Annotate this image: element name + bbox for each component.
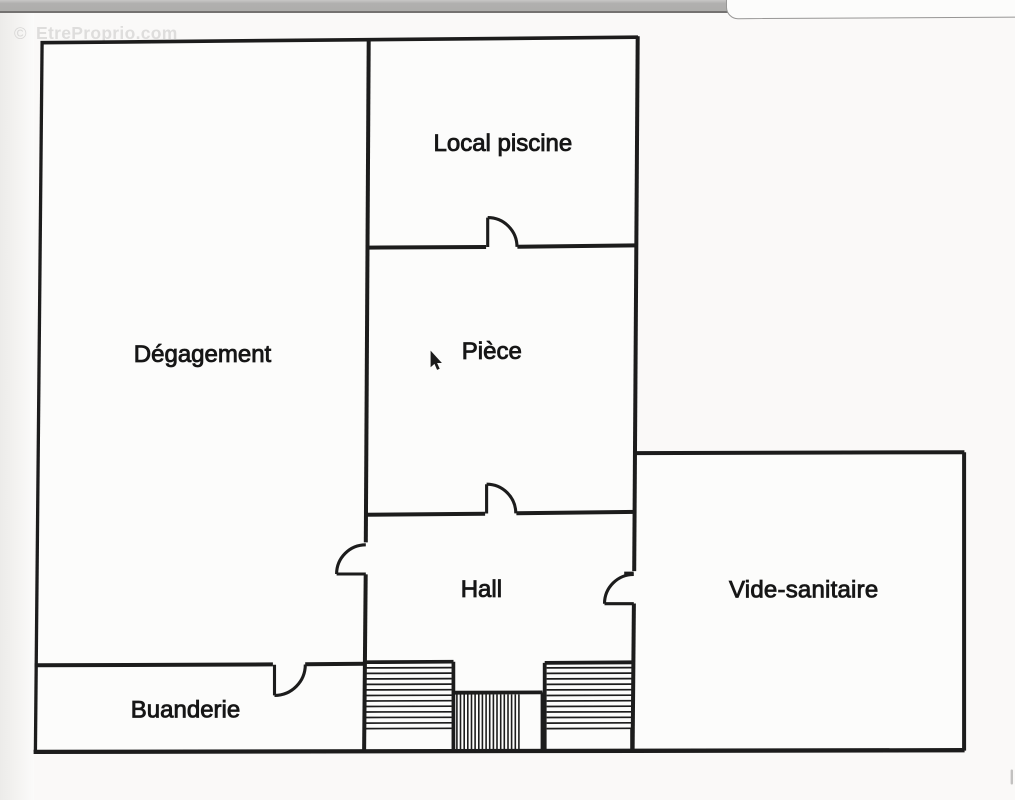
svg-text:Dégagement: Dégagement — [134, 341, 272, 368]
svg-text:Local piscine: Local piscine — [434, 130, 573, 157]
svg-text:Hall: Hall — [461, 576, 502, 603]
svg-text:Buanderie: Buanderie — [131, 696, 240, 723]
svg-text:Vide-sanitaire: Vide-sanitaire — [729, 577, 878, 604]
svg-text:Pièce: Pièce — [462, 338, 522, 365]
